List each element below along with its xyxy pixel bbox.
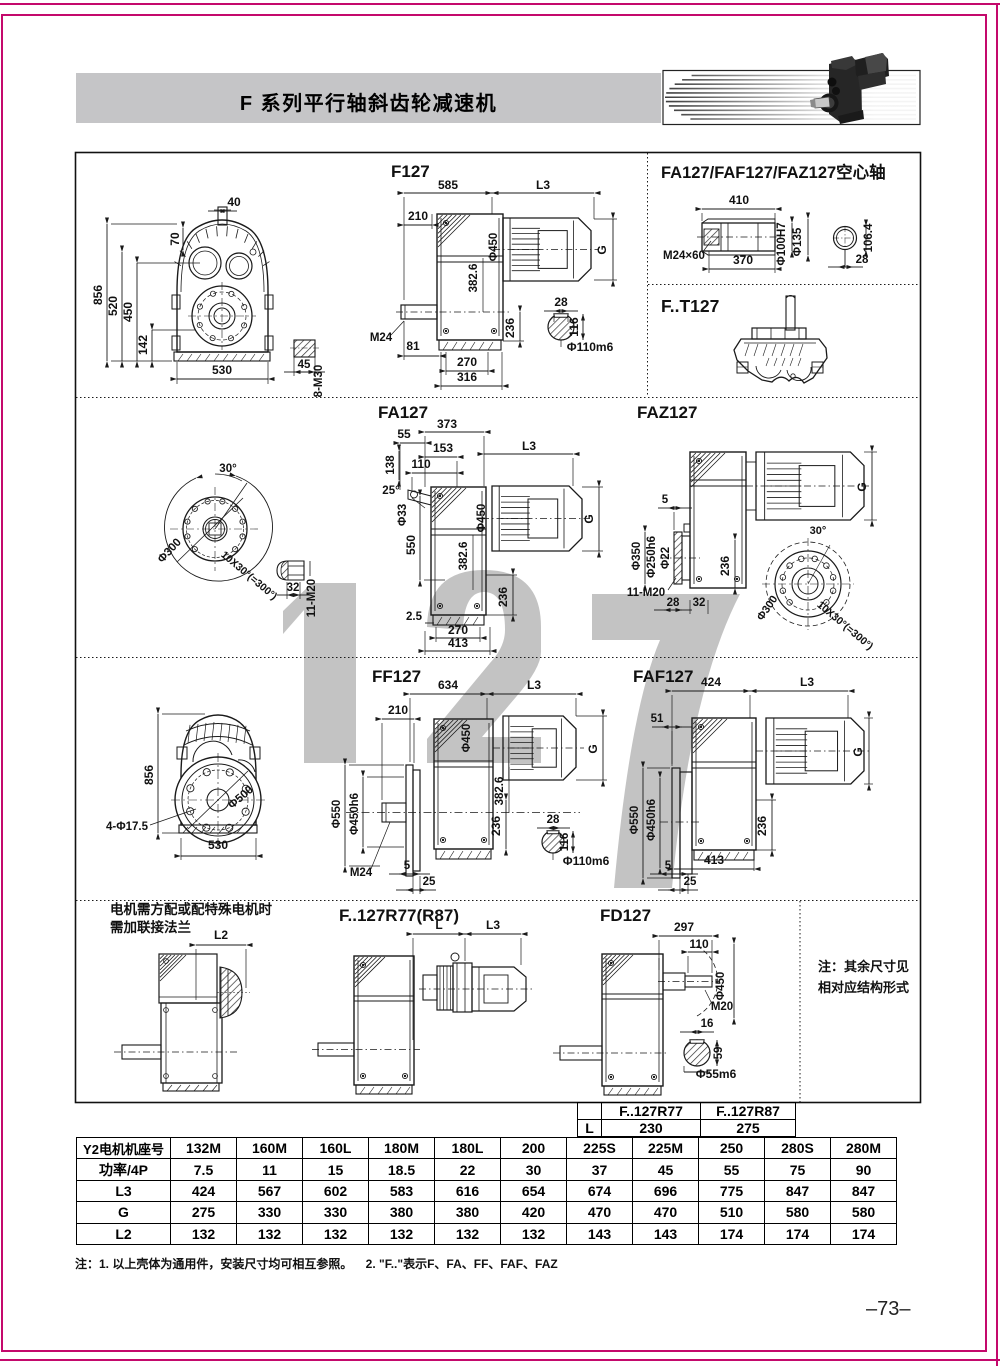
svg-text:G: G (586, 744, 600, 753)
svg-text:Φ300: Φ300 (156, 536, 184, 565)
svg-text:55: 55 (397, 427, 411, 441)
svg-text:520: 520 (106, 296, 120, 316)
svg-text:2.5: 2.5 (406, 611, 423, 623)
svg-text:Φ450: Φ450 (715, 972, 727, 1001)
svg-text:413: 413 (704, 853, 724, 867)
svg-text:28: 28 (554, 295, 568, 309)
svg-text:236: 236 (503, 318, 517, 338)
svg-text:Φ450: Φ450 (461, 724, 473, 753)
svg-text:530: 530 (212, 363, 232, 377)
svg-text:25°: 25° (382, 485, 400, 497)
svg-text:856: 856 (142, 765, 156, 785)
svg-text:30°: 30° (219, 463, 237, 475)
svg-text:5: 5 (662, 494, 669, 506)
svg-text:585: 585 (438, 178, 458, 192)
svg-text:25: 25 (423, 876, 436, 888)
svg-text:FD127: FD127 (600, 906, 651, 925)
svg-text:5: 5 (404, 860, 411, 872)
svg-text:110: 110 (411, 457, 431, 471)
svg-text:需加联接法兰: 需加联接法兰 (110, 919, 191, 935)
svg-text:G: G (582, 514, 596, 523)
svg-text:F127: F127 (391, 162, 430, 181)
svg-text:FA127/FAF127/FAZ127空心轴: FA127/FAF127/FAZ127空心轴 (661, 162, 886, 182)
svg-text:L: L (435, 918, 442, 932)
svg-text:Φ100H7: Φ100H7 (776, 222, 788, 265)
svg-text:FAF127: FAF127 (633, 667, 693, 686)
svg-text:370: 370 (733, 253, 753, 267)
svg-text:Φ450h6: Φ450h6 (646, 799, 658, 841)
svg-text:236: 236 (489, 816, 503, 836)
svg-text:30°: 30° (810, 525, 827, 537)
svg-text:11-M20: 11-M20 (627, 587, 665, 599)
svg-text:相对应结构形式: 相对应结构形式 (818, 980, 909, 995)
svg-text:59: 59 (713, 1047, 725, 1060)
svg-text:550: 550 (404, 535, 418, 555)
svg-text:28: 28 (667, 597, 680, 609)
svg-text:210: 210 (408, 209, 428, 223)
svg-text:413: 413 (448, 636, 468, 650)
svg-text:L3: L3 (527, 678, 541, 692)
svg-text:40: 40 (227, 195, 241, 209)
svg-text:FAZ127: FAZ127 (637, 403, 697, 422)
svg-text:M24: M24 (350, 867, 373, 879)
svg-text:236: 236 (755, 816, 769, 836)
svg-text:373: 373 (437, 417, 457, 431)
svg-text:Φ550: Φ550 (629, 806, 641, 835)
svg-text:L3: L3 (800, 675, 814, 689)
svg-text:450: 450 (121, 302, 135, 322)
svg-text:Φ110m6: Φ110m6 (563, 854, 610, 868)
svg-text:382.6: 382.6 (468, 264, 480, 293)
svg-text:856: 856 (91, 285, 105, 305)
svg-text:32: 32 (287, 582, 300, 594)
svg-text:81: 81 (406, 339, 420, 353)
svg-text:25: 25 (684, 876, 697, 888)
svg-text:210: 210 (388, 703, 408, 717)
svg-text:F..T127: F..T127 (661, 296, 719, 316)
svg-text:Φ350: Φ350 (631, 542, 643, 571)
svg-text:236: 236 (496, 587, 510, 607)
svg-text:10X30°(=300°): 10X30°(=300°) (218, 549, 279, 603)
svg-text:L3: L3 (536, 178, 550, 192)
svg-text:116: 116 (559, 833, 571, 852)
svg-text:270: 270 (448, 623, 468, 637)
svg-text:16: 16 (701, 1018, 714, 1030)
svg-text:382.6: 382.6 (458, 542, 470, 571)
svg-text:70: 70 (168, 232, 182, 246)
svg-text:51: 51 (651, 713, 664, 725)
svg-text:32: 32 (693, 597, 706, 609)
svg-text:M24×60: M24×60 (663, 250, 705, 262)
svg-text:382.6: 382.6 (494, 777, 506, 806)
svg-text:M20: M20 (711, 1001, 733, 1013)
svg-text:138: 138 (385, 455, 397, 475)
svg-text:M24: M24 (370, 332, 393, 344)
svg-text:注：其余尺寸见: 注：其余尺寸见 (818, 959, 909, 974)
svg-text:106.4: 106.4 (863, 223, 875, 252)
svg-text:Φ135: Φ135 (792, 227, 804, 256)
svg-text:Φ550: Φ550 (331, 800, 343, 829)
svg-text:Φ250h6: Φ250h6 (646, 536, 658, 578)
svg-text:116: 116 (567, 317, 581, 337)
svg-text:L3: L3 (486, 918, 500, 932)
svg-text:236: 236 (718, 556, 732, 576)
svg-text:634: 634 (438, 678, 458, 692)
svg-text:Φ22: Φ22 (660, 547, 672, 569)
svg-text:Φ450h6: Φ450h6 (349, 793, 361, 835)
svg-text:G: G (851, 747, 865, 756)
svg-text:110: 110 (689, 937, 709, 951)
svg-text:Φ55m6: Φ55m6 (696, 1067, 737, 1081)
svg-text:电机需方配或配特殊电机时: 电机需方配或配特殊电机时 (110, 901, 272, 917)
svg-text:153: 153 (433, 441, 453, 455)
svg-text:Φ450: Φ450 (488, 233, 500, 262)
svg-text:316: 316 (457, 370, 477, 384)
svg-text:410: 410 (729, 193, 749, 207)
svg-text:Φ300: Φ300 (755, 594, 781, 623)
svg-text:28: 28 (856, 254, 869, 266)
svg-text:G: G (595, 245, 609, 254)
svg-text:142: 142 (136, 335, 150, 355)
svg-text:Φ450: Φ450 (476, 504, 488, 533)
svg-text:424: 424 (701, 675, 721, 689)
svg-text:45: 45 (298, 359, 311, 371)
svg-text:4-Φ17.5: 4-Φ17.5 (106, 821, 149, 833)
svg-text:G: G (855, 482, 869, 491)
svg-text:FF127: FF127 (372, 667, 421, 686)
svg-text:L3: L3 (522, 439, 536, 453)
svg-text:297: 297 (674, 920, 694, 934)
svg-text:530: 530 (208, 838, 228, 852)
svg-text:Φ110m6: Φ110m6 (567, 340, 614, 354)
svg-text:10X30°(=300°): 10X30°(=300°) (814, 599, 875, 653)
svg-text:28: 28 (547, 814, 560, 826)
svg-text:270: 270 (457, 355, 477, 369)
svg-text:5: 5 (665, 860, 672, 872)
svg-text:FA127: FA127 (378, 403, 428, 422)
svg-text:L2: L2 (214, 928, 228, 942)
svg-text:11-M20: 11-M20 (306, 579, 318, 617)
svg-text:Φ33: Φ33 (397, 504, 409, 526)
